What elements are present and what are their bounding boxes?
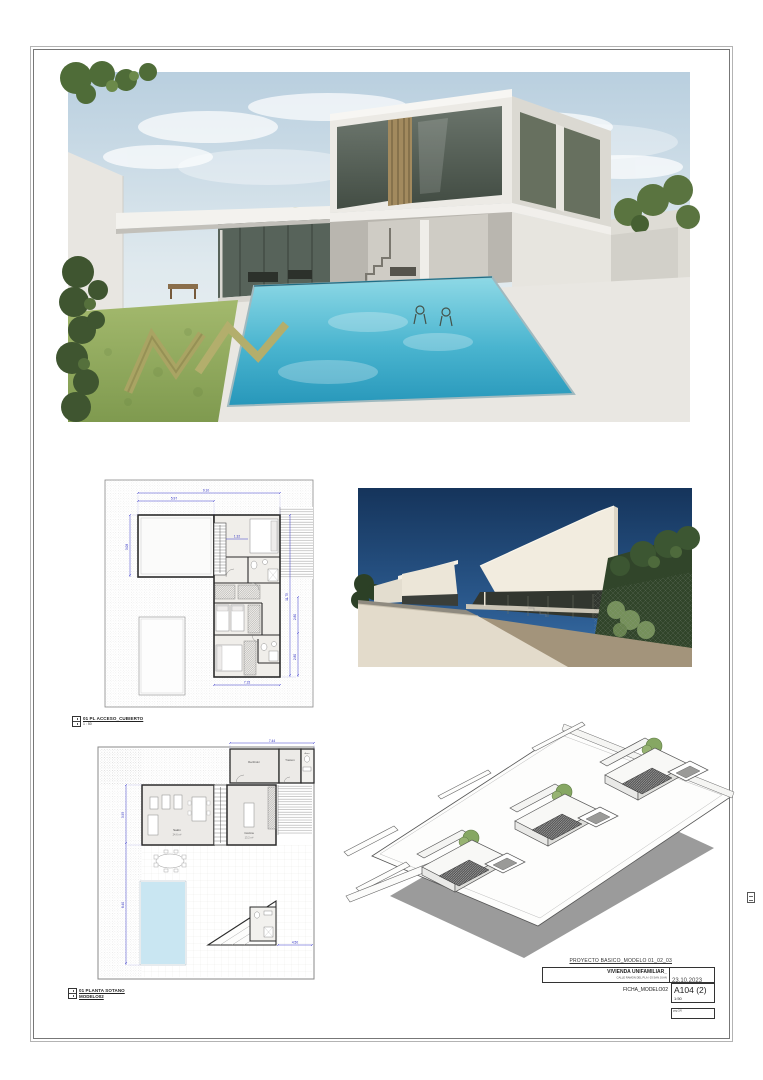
room-area: 24.6 m²: [173, 833, 182, 837]
dim-label: 9.10: [203, 489, 209, 493]
page-note: pag 2/6: [672, 1009, 691, 1013]
ground-floor-plan: Recibidor Trastero Aseo Salón 24.6 m² Co…: [96, 741, 318, 987]
dim-label: 7.15: [244, 681, 250, 685]
stairs: [214, 523, 226, 575]
room-label: Salón: [173, 828, 181, 832]
room-label: Trastero: [285, 758, 295, 762]
pool: [140, 881, 186, 965]
ground-plan-label: 01 PLANTA SOTANO MODELO02: [68, 988, 125, 999]
dim-label: 3.08: [125, 544, 129, 550]
axonometric-view: [342, 700, 738, 944]
room-label: Recibidor: [248, 760, 260, 764]
dim-label: 2.80: [293, 654, 297, 660]
exterior-steps: [278, 785, 312, 835]
ficha-label: FICHA_MODELO02: [540, 987, 668, 993]
dim-label: 11.75: [285, 593, 289, 601]
title-block-left-cell: VIVIENDA UNIFAMILIAR_ CALLE RAMON DEL PL…: [543, 968, 670, 982]
dim-label: 8.40: [121, 902, 125, 908]
ground-plan-model: MODELO02: [79, 994, 125, 999]
room-label: Cocina: [244, 831, 254, 835]
kitchen: Cocina 13.2 m²: [227, 785, 276, 845]
page-note-box: pag 2/6: [671, 1008, 715, 1019]
exterior-steps: [280, 507, 313, 579]
title-block-right-cell: 23.10.2023: [670, 968, 714, 982]
view-tag-icon: [72, 716, 81, 727]
view-tag-icon: [68, 988, 77, 999]
title-block-box: VIVIENDA UNIFAMILIAR_ CALLE RAMON DEL PL…: [542, 967, 715, 983]
registration-mark-icon: [747, 892, 755, 903]
stairs: [214, 785, 227, 845]
upper-floor-plan: 9.10 5.97 3.08 1.32 11.75 2.80 2.80 7.15: [102, 477, 316, 710]
title-block: PROYECTO BASICO_MODELO 01_02_03 VIVIENDA…: [540, 956, 716, 1026]
upper-plan-title: 01 PL ACCESO_CUBIERTO: [83, 716, 143, 721]
living-room: Salón 24.6 m²: [142, 785, 214, 845]
project-title: PROYECTO BASICO_MODELO 01_02_03: [540, 958, 672, 964]
dim-label: 7.44: [269, 739, 275, 743]
upper-plan-label: 01 PL ACCESO_CUBIERTO 1 : 50: [72, 716, 143, 727]
dim-label: 4.50: [292, 941, 298, 945]
room-area: 13.2 m²: [245, 836, 254, 840]
sheet-scale: 1:50: [674, 996, 712, 1001]
pool-outline: [139, 617, 185, 695]
upper-plan-scale: 1 : 50: [83, 722, 143, 726]
top-rooms: Recibidor Trastero Aseo: [230, 749, 314, 783]
dim-label: 3.95: [121, 812, 125, 818]
client-name: VIVIENDA UNIFAMILIAR_: [607, 969, 667, 975]
main-exterior-render: [68, 72, 690, 422]
dim-label: 5.97: [171, 497, 177, 501]
sheet-number-cell: A104 (2) 1:50: [671, 983, 715, 1003]
room-label: Aseo: [305, 752, 311, 755]
sheet-number: A104 (2): [674, 985, 712, 995]
dim-label: 1.32: [234, 535, 240, 539]
ground-plan-title: 01 PLANTA SOTANO: [79, 988, 125, 993]
street-view-render: [358, 488, 692, 667]
project-address: CALLE RAMON DEL PLA / 03 SAN JUAN: [617, 977, 667, 980]
dim-label: 2.80: [293, 614, 297, 620]
